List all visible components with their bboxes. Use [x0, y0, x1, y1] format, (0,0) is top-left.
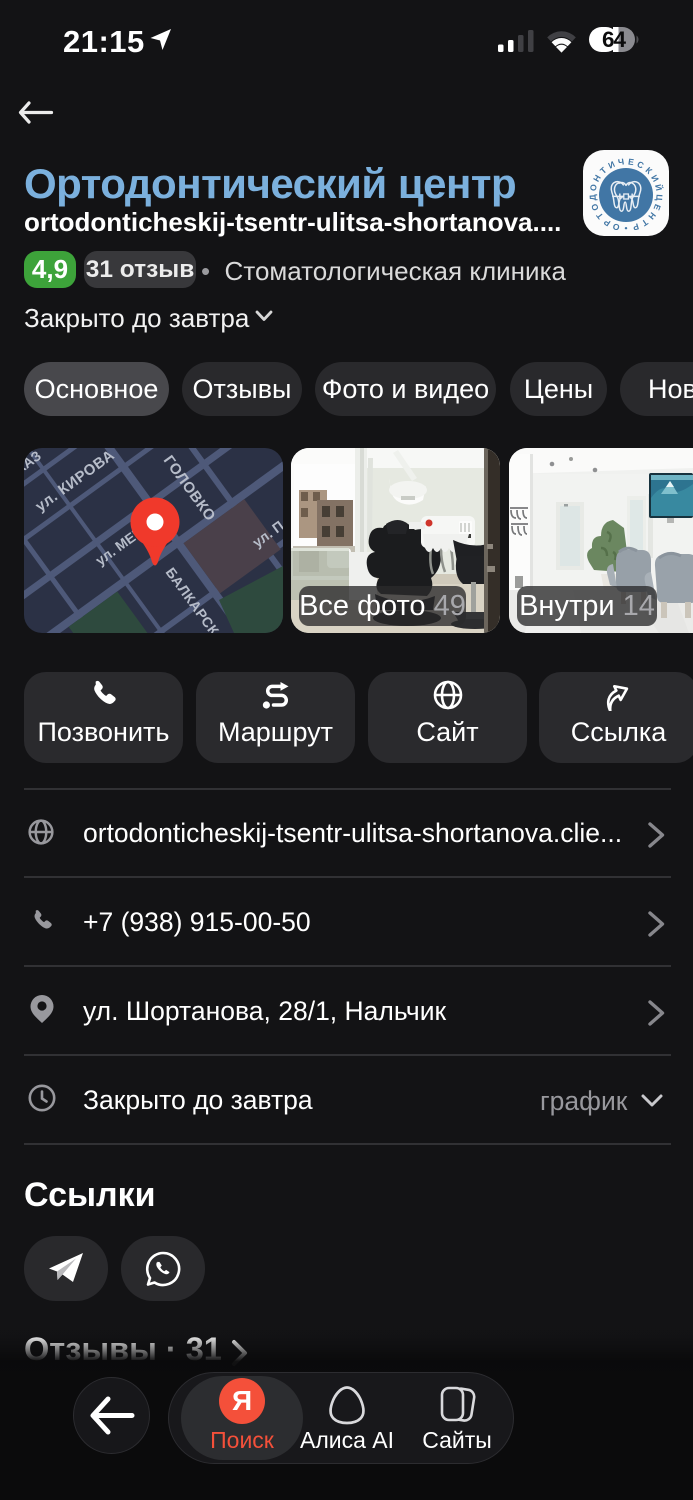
svg-text:•: • — [624, 224, 627, 234]
svg-text:64: 64 — [602, 27, 627, 52]
svg-text:Д: Д — [587, 194, 597, 201]
